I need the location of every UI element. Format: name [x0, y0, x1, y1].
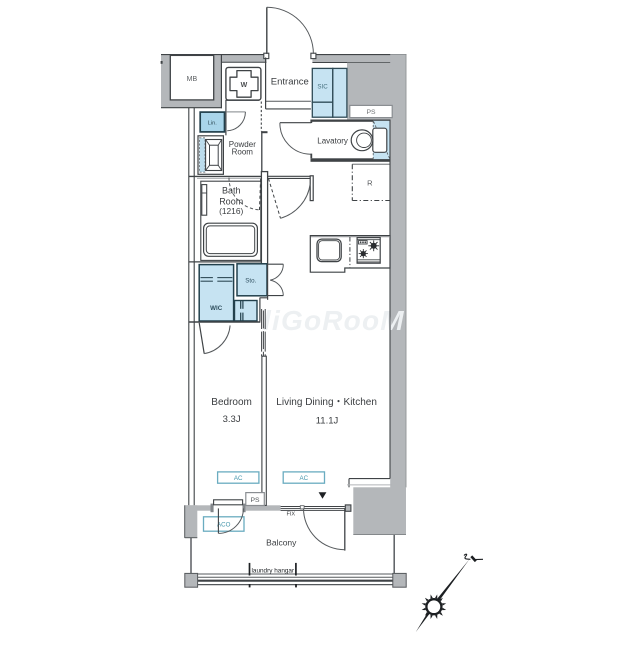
svg-text:Entrance: Entrance	[271, 76, 309, 87]
svg-text:PS: PS	[250, 497, 260, 504]
svg-text:FIX: FIX	[286, 511, 295, 517]
svg-text:ACO: ACO	[217, 522, 231, 529]
svg-text:laundry hangar: laundry hangar	[251, 568, 295, 575]
svg-text:(1216): (1216)	[219, 206, 243, 216]
svg-text:Balcony: Balcony	[266, 537, 297, 547]
svg-text:WIC: WIC	[210, 305, 223, 312]
svg-text:W: W	[241, 82, 248, 89]
svg-text:R: R	[367, 178, 373, 187]
svg-text:Bedroom: Bedroom	[211, 397, 252, 408]
svg-text:Bath: Bath	[222, 185, 241, 195]
svg-text:SIC: SIC	[317, 83, 328, 90]
svg-text:AC: AC	[299, 475, 308, 482]
svg-text:PS: PS	[366, 109, 376, 116]
svg-text:Sto.: Sto.	[245, 278, 256, 285]
svg-text:AC: AC	[234, 475, 243, 482]
svg-text:Room: Room	[232, 148, 254, 157]
svg-text:Lavatory: Lavatory	[317, 136, 348, 145]
svg-text:3.3J: 3.3J	[223, 414, 241, 425]
svg-text:11.1J: 11.1J	[316, 415, 339, 426]
svg-text:MB: MB	[187, 76, 198, 83]
svg-text:liGoRooM: liGoRooM	[263, 305, 405, 336]
svg-text:Lin.: Lin.	[208, 121, 217, 127]
svg-text:Room: Room	[219, 196, 243, 206]
svg-text:Living Dining・Kitchen: Living Dining・Kitchen	[276, 397, 377, 408]
